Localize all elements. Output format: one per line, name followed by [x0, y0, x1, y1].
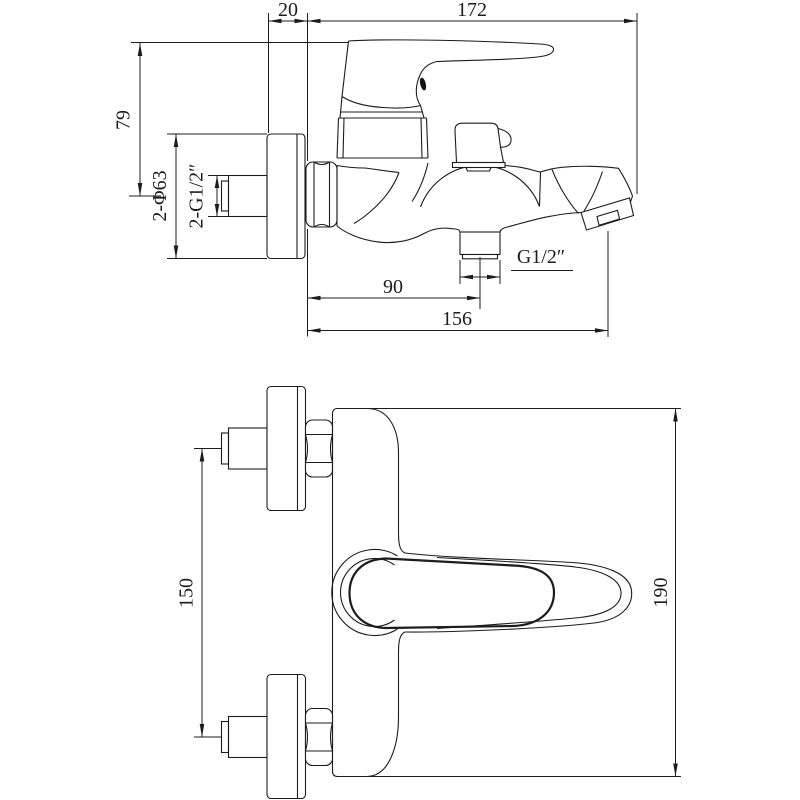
dim-text-overall-length: 172 [457, 0, 487, 21]
lever-hub-curve [416, 62, 437, 106]
dim-text-outlet-thread: G1/2″ [517, 246, 565, 268]
shower-outlet [460, 232, 500, 259]
dim-text-inlet-spacing: 150 [176, 578, 198, 608]
lever-screw [419, 77, 428, 91]
body-bottom-left [337, 226, 460, 243]
nipple-thread [229, 176, 268, 217]
nut-outline [306, 162, 337, 227]
spout-front-edge [552, 170, 579, 214]
escutcheon-outline [267, 134, 305, 259]
body-bottom-right [500, 213, 581, 233]
lever-top-outline [350, 559, 555, 629]
diverter-knob [453, 123, 512, 171]
nipple-end-cap [222, 433, 229, 464]
spout-inner-edge [584, 172, 603, 212]
diverter-flange [453, 163, 506, 168]
body-dome-arc [421, 165, 540, 207]
wall-escutcheon-plate [267, 387, 306, 511]
dimension-inlet-thread: 2-G1/2″ [186, 164, 230, 229]
faucet-drawing-svg: 20 172 79 2-Φ63 [0, 0, 800, 800]
dimension-inlet-spacing: 150 [176, 449, 223, 738]
spout [541, 166, 634, 230]
technical-drawing-canvas: 20 172 79 2-Φ63 [0, 0, 800, 800]
body-curve-a [354, 173, 399, 224]
handle-collar [340, 97, 424, 119]
lower-inlet [222, 675, 333, 799]
dim-text-inlet-thread: 2-G1/2″ [186, 164, 208, 229]
diverter-body [455, 123, 504, 162]
mixer-body-plan [332, 409, 632, 777]
lever-blade [349, 40, 554, 62]
mixer-body [337, 40, 634, 259]
dim-text-escutcheon-diameter: 2-Φ63 [149, 170, 171, 221]
body-slab [333, 409, 399, 777]
nipple-end-cap [222, 722, 229, 753]
wall-escutcheon-plate [267, 675, 306, 799]
dimension-escutcheon-diameter: 2-Φ63 [149, 134, 267, 259]
handle-fillets [399, 533, 406, 652]
body-top-left [337, 166, 399, 173]
nipple-thread [229, 428, 268, 469]
dimension-overall-width: 190 [337, 409, 681, 777]
dimension-outlet-thread: G1/2″ [460, 246, 573, 284]
lever-hub-edge [342, 41, 349, 97]
dim-text-overall-width: 190 [650, 578, 672, 608]
spout-outline [541, 166, 633, 203]
hex-nut [306, 162, 337, 227]
hex-nut [306, 709, 333, 766]
outlet-thread [460, 232, 500, 255]
dim-text-handle-height: 79 [113, 110, 135, 130]
nipple-thread [229, 717, 268, 758]
hex-nut [306, 420, 333, 477]
nipple-end-cap [222, 181, 229, 211]
body-top-right [504, 166, 541, 207]
upper-inlet [222, 387, 333, 511]
dim-text-outlet-overall: 156 [442, 308, 472, 330]
plan-view: 150 190 [176, 387, 682, 799]
wall-escutcheon-plate [267, 134, 305, 259]
cartridge-block [337, 118, 428, 158]
dim-text-wall-offset: 20 [278, 0, 298, 21]
dim-text-outlet-offset: 90 [383, 276, 403, 298]
side-view: 20 172 79 2-Φ63 [113, 0, 638, 337]
inlet-nipple [222, 176, 268, 217]
